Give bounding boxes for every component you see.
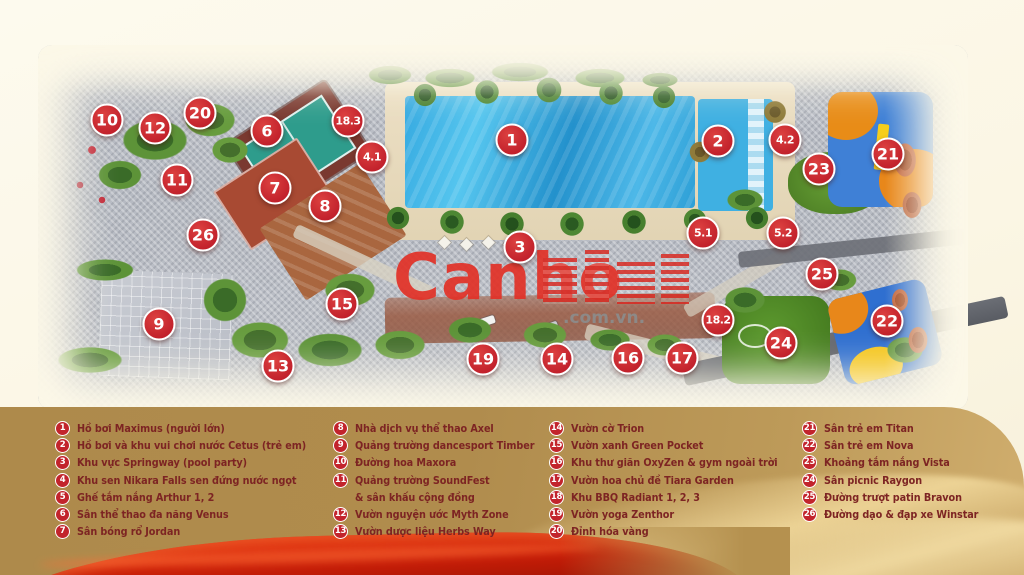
map-marker-19: 19 <box>467 343 500 376</box>
legend-item-13: 13Vườn dược liệu Herbs Way <box>333 523 559 540</box>
legend-item-20: 20Đỉnh hóa vàng <box>549 523 806 540</box>
legend-item-10: 10Đường hoa Maxora <box>333 454 559 471</box>
map-marker-1: 1 <box>496 124 529 157</box>
legend-number-badge: 11 <box>333 473 348 488</box>
legend-number-badge: 13 <box>333 524 348 539</box>
map-marker-26: 26 <box>187 219 220 252</box>
legend-label: Nhà dịch vụ thể thao Axel <box>355 420 494 437</box>
map-marker-14: 14 <box>541 343 574 376</box>
legend-item-5: 5Ghế tắm nắng Arthur 1, 2 <box>55 489 337 506</box>
legend-number-badge: 17 <box>549 473 564 488</box>
legend-label: Vườn nguyện ước Myth Zone <box>355 506 509 523</box>
legend-label: Đỉnh hóa vàng <box>571 523 649 540</box>
legend-item-14: 14Vườn cờ Trion <box>549 420 806 437</box>
legend-item-12: 12Vườn nguyện ước Myth Zone <box>333 506 559 523</box>
legend-number-badge: 16 <box>549 455 564 470</box>
map-marker-3: 3 <box>504 231 537 264</box>
legend-column-3: 14Vườn cờ Trion15Vườn xanh Green Pocket1… <box>549 420 806 540</box>
legend-number-badge: 5 <box>55 490 70 505</box>
legend-label: Sân trẻ em Nova <box>824 437 913 454</box>
legend-item-19: 19Vườn yoga Zenthor <box>549 506 806 523</box>
map-marker-18.2: 18.2 <box>702 304 735 337</box>
legend-label: Vườn yoga Zenthor <box>571 506 674 523</box>
legend-label: Sân picnic Raygon <box>824 472 922 489</box>
legend-item-15: 15Vườn xanh Green Pocket <box>549 437 806 454</box>
legend-number-badge: 3 <box>55 455 70 470</box>
map-marker-23: 23 <box>803 153 836 186</box>
map-marker-21: 21 <box>872 138 905 171</box>
map-marker-24: 24 <box>765 327 798 360</box>
legend-item-8: 8Nhà dịch vụ thể thao Axel <box>333 420 559 437</box>
legend-item-16: 16Khu thư giãn OxyZen & gym ngoài trời <box>549 454 806 471</box>
map-marker-9: 9 <box>143 308 176 341</box>
legend-label: Sân thể thao đa năng Venus <box>77 506 229 523</box>
legend-number-badge: 25 <box>802 490 817 505</box>
legend-item-1: 1Hồ bơi Maximus (người lớn) <box>55 420 337 437</box>
legend-item-11: 11Quảng trường SoundFest & sân khấu cộng… <box>333 472 559 506</box>
legend-item-22: 22Sân trẻ em Nova <box>802 437 999 454</box>
legend-label: Đường hoa Maxora <box>355 454 456 471</box>
legend-number-badge: 21 <box>802 421 817 436</box>
legend-number-badge: 8 <box>333 421 348 436</box>
map-marker-4.1: 4.1 <box>356 141 389 174</box>
map-marker-8: 8 <box>309 190 342 223</box>
legend-item-3: 3Khu vực Springway (pool party) <box>55 454 337 471</box>
map-marker-6: 6 <box>251 115 284 148</box>
legend-item-7: 7Sân bóng rổ Jordan <box>55 523 337 540</box>
legend-label: Quảng trường SoundFest & sân khấu cộng đ… <box>355 472 490 506</box>
map-marker-5.1: 5.1 <box>687 217 720 250</box>
legend-item-25: 25Đường trượt patin Bravon <box>802 489 999 506</box>
legend-label: Vườn dược liệu Herbs Way <box>355 523 496 540</box>
legend-label: Khu vực Springway (pool party) <box>77 454 247 471</box>
legend-label: Hồ bơi và khu vui chơi nước Cetus (trẻ e… <box>77 437 306 454</box>
legend-label: Khu sen Nikara Falls sen đứng nước ngọt <box>77 472 296 489</box>
legend-label: Ghế tắm nắng Arthur 1, 2 <box>77 489 214 506</box>
map-marker-5.2: 5.2 <box>767 217 800 250</box>
map-marker-13: 13 <box>262 350 295 383</box>
map-marker-17: 17 <box>666 342 699 375</box>
map-marker-7: 7 <box>259 172 292 205</box>
legend-item-18: 18Khu BBQ Radiant 1, 2, 3 <box>549 489 806 506</box>
legend-label: Khoảng tắm nắng Vista <box>824 454 950 471</box>
map-marker-16: 16 <box>612 342 645 375</box>
legend-label: Quảng trường dancesport Timber <box>355 437 534 454</box>
legend-number-badge: 22 <box>802 438 817 453</box>
legend-column-1: 1Hồ bơi Maximus (người lớn)2Hồ bơi và kh… <box>55 420 337 540</box>
legend-number-badge: 23 <box>802 455 817 470</box>
legend-number-badge: 18 <box>549 490 564 505</box>
legend-item-4: 4Khu sen Nikara Falls sen đứng nước ngọt <box>55 472 337 489</box>
legend-number-badge: 10 <box>333 455 348 470</box>
legend-column-2: 8Nhà dịch vụ thể thao Axel9Quảng trường … <box>333 420 559 540</box>
legend-label: Vườn xanh Green Pocket <box>571 437 703 454</box>
legend-label: Đường trượt patin Bravon <box>824 489 962 506</box>
amenities-site-map-poster: Canho .com.vn. 1234.14.25.15.26789101112… <box>0 0 1024 575</box>
legend-number-badge: 2 <box>55 438 70 453</box>
legend-item-9: 9Quảng trường dancesport Timber <box>333 437 559 454</box>
map-marker-25: 25 <box>806 258 839 291</box>
legend-number-badge: 26 <box>802 507 817 522</box>
legend-label: Vườn hoa chủ đề Tiara Garden <box>571 472 734 489</box>
legend-number-badge: 24 <box>802 473 817 488</box>
legend-item-6: 6Sân thể thao đa năng Venus <box>55 506 337 523</box>
legend-number-badge: 15 <box>549 438 564 453</box>
legend-label: Sân trẻ em Titan <box>824 420 914 437</box>
legend-number-badge: 20 <box>549 524 564 539</box>
legend-item-24: 24Sân picnic Raygon <box>802 472 999 489</box>
legend-item-23: 23Khoảng tắm nắng Vista <box>802 454 999 471</box>
map-marker-12: 12 <box>139 112 172 145</box>
legend-label: Khu BBQ Radiant 1, 2, 3 <box>571 489 700 506</box>
legend-number-badge: 14 <box>549 421 564 436</box>
legend-label: Đường dạo & đạp xe Winstar <box>824 506 978 523</box>
map-marker-20: 20 <box>184 97 217 130</box>
legend-label: Khu thư giãn OxyZen & gym ngoài trời <box>571 454 778 471</box>
map-marker-4.2: 4.2 <box>769 124 802 157</box>
legend-number-badge: 7 <box>55 524 70 539</box>
legend-number-badge: 4 <box>55 473 70 488</box>
legend-number-badge: 12 <box>333 507 348 522</box>
map-marker-2: 2 <box>702 125 735 158</box>
map-marker-10: 10 <box>91 104 124 137</box>
legend-item-2: 2Hồ bơi và khu vui chơi nước Cetus (trẻ … <box>55 437 337 454</box>
legend-item-21: 21Sân trẻ em Titan <box>802 420 999 437</box>
legend-item-26: 26Đường dạo & đạp xe Winstar <box>802 506 999 523</box>
legend-number-badge: 9 <box>333 438 348 453</box>
legend-label: Sân bóng rổ Jordan <box>77 523 180 540</box>
legend-number-badge: 1 <box>55 421 70 436</box>
map-marker-22: 22 <box>871 305 904 338</box>
legend-item-17: 17Vườn hoa chủ đề Tiara Garden <box>549 472 806 489</box>
map-marker-18.3: 18.3 <box>332 105 365 138</box>
legend-label: Hồ bơi Maximus (người lớn) <box>77 420 225 437</box>
legend-label: Vườn cờ Trion <box>571 420 644 437</box>
legend-column-4: 21Sân trẻ em Titan22Sân trẻ em Nova23Kho… <box>802 420 999 523</box>
map-marker-11: 11 <box>161 164 194 197</box>
legend-number-badge: 6 <box>55 507 70 522</box>
map-marker-15: 15 <box>326 288 359 321</box>
legend-number-badge: 19 <box>549 507 564 522</box>
